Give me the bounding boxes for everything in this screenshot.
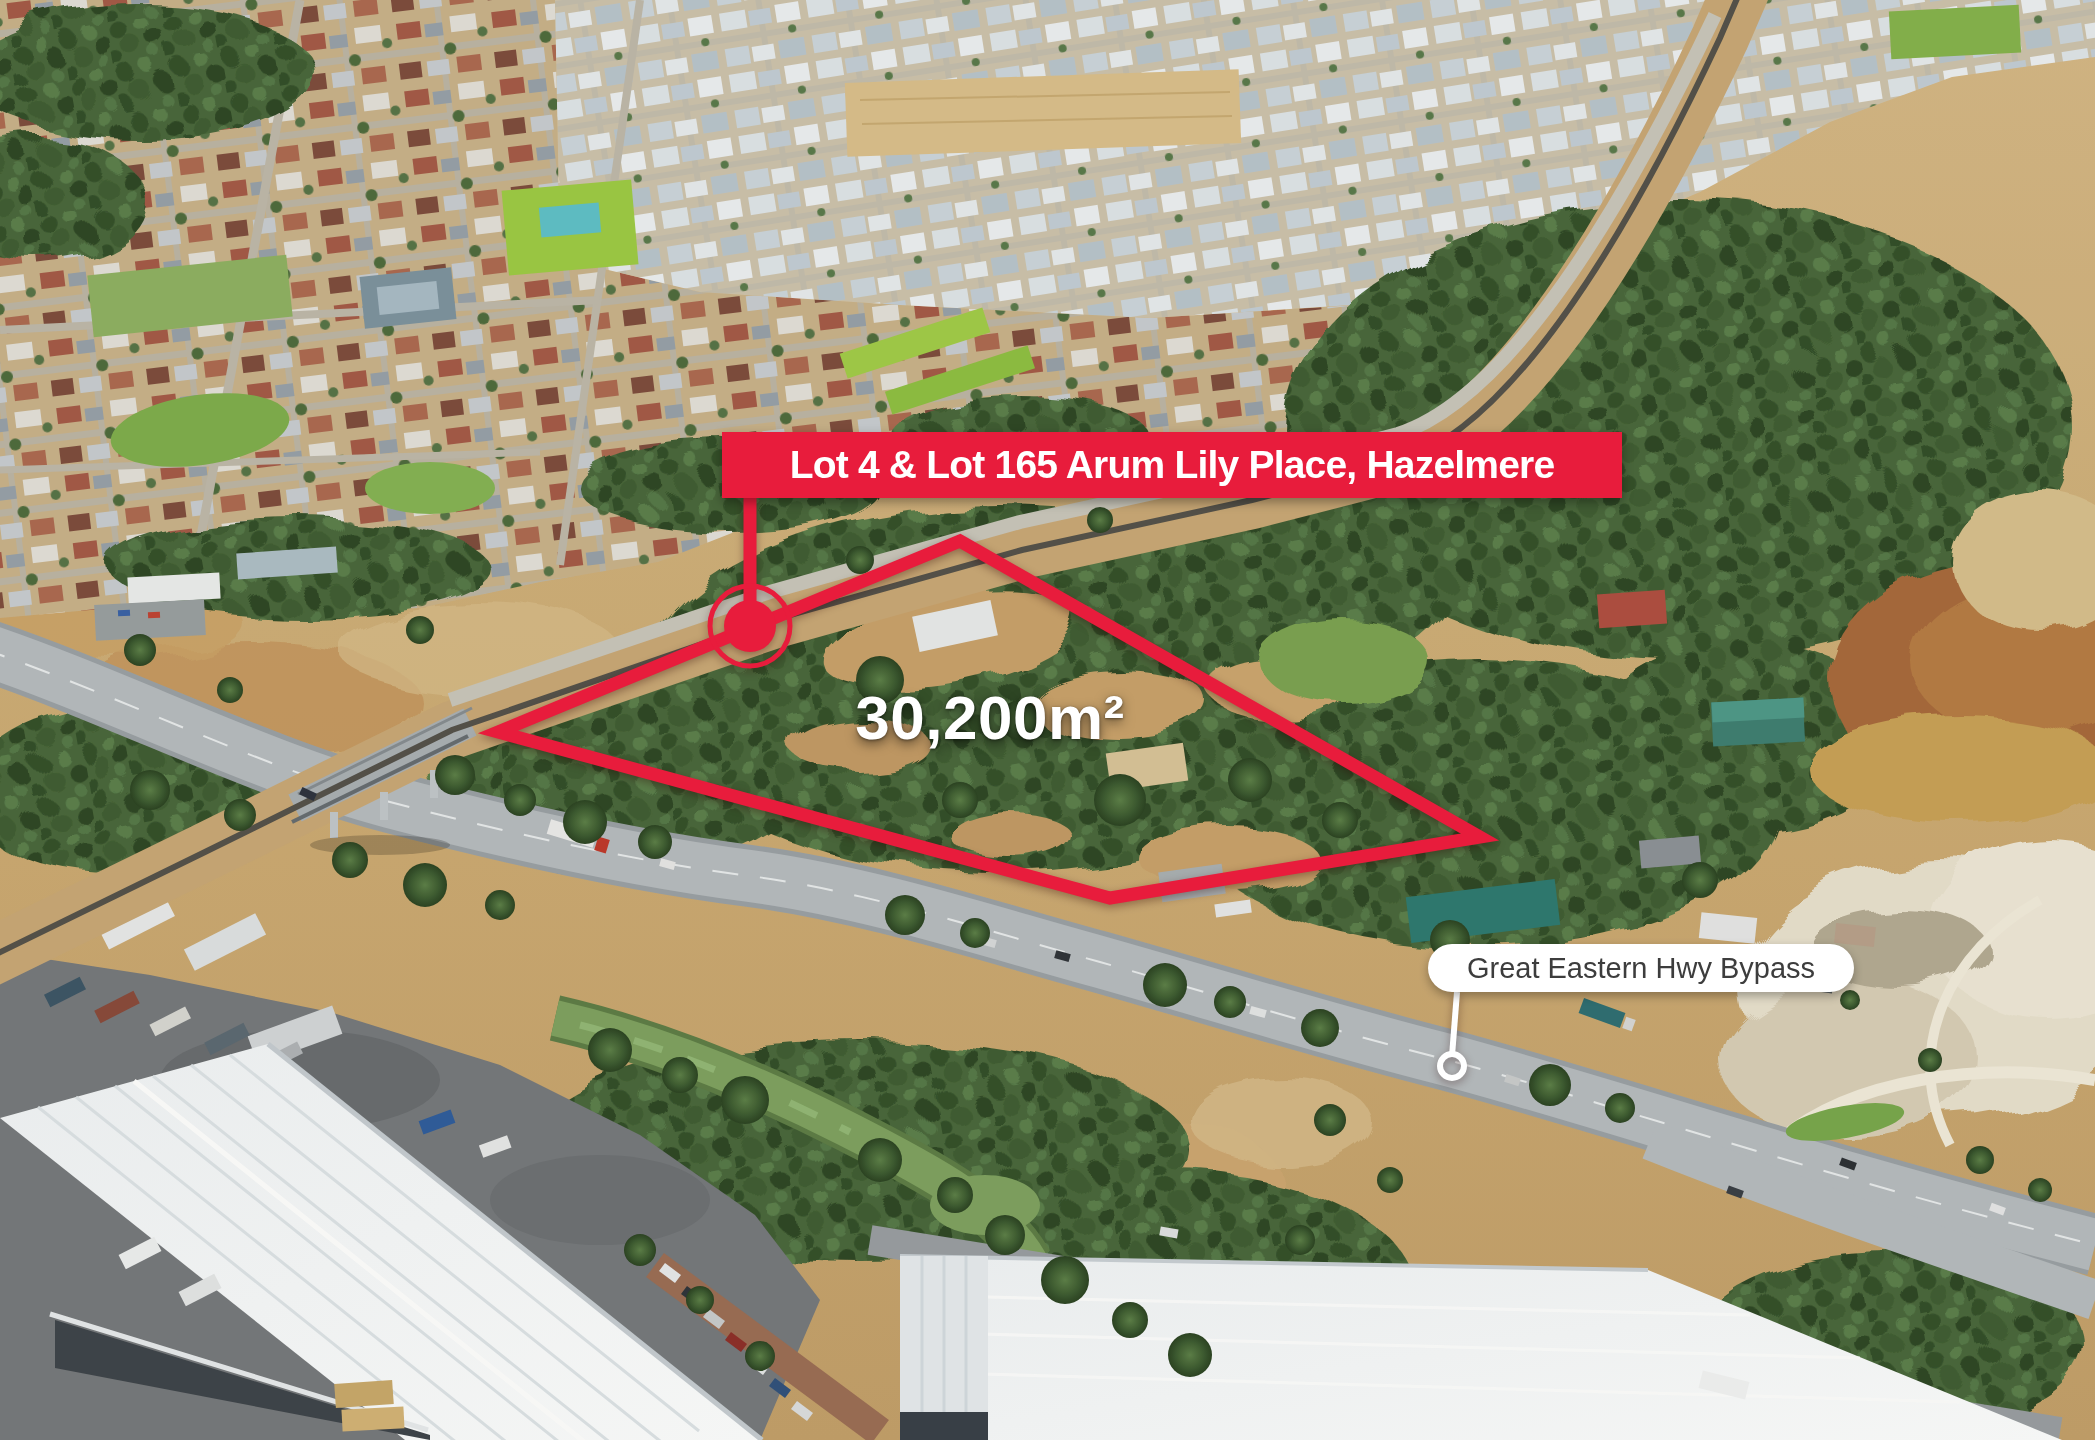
property-banner: Lot 4 & Lot 165 Arum Lily Place, Hazelme…: [722, 432, 1622, 498]
aerial-property-photo: Lot 4 & Lot 165 Arum Lily Place, Hazelme…: [0, 0, 2095, 1440]
road-label-pill: Great Eastern Hwy Bypass: [1428, 944, 1854, 992]
area-label: 30,200m²: [780, 682, 1200, 753]
